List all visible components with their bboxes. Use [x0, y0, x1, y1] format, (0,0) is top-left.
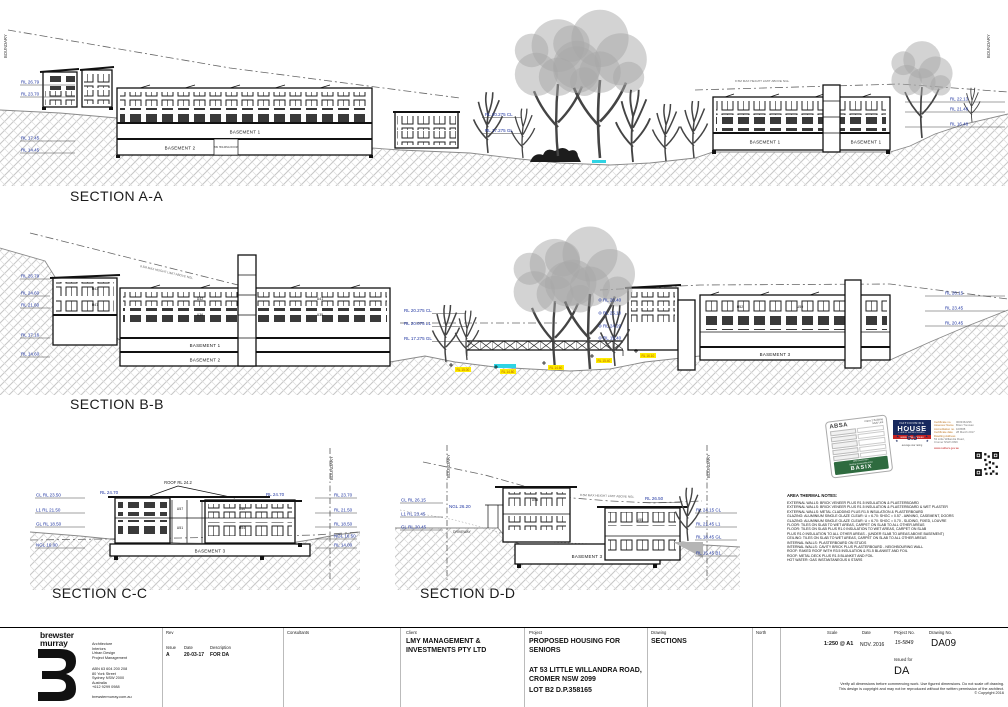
svg-text:RL 15.00: RL 15.00 — [457, 368, 470, 372]
basement-label: BASEMENT 1 — [230, 130, 261, 135]
svg-text:★: ★ — [895, 439, 898, 443]
firm-logo-mark — [36, 649, 76, 701]
svg-text:★: ★ — [915, 425, 918, 429]
svg-text:RL 22.13: RL 22.13 — [950, 97, 969, 102]
basix-certificate-stamp: ABSA Class 2 Building Multi Unit NSW Gov… — [825, 414, 893, 478]
svg-text:RL 19.40: RL 19.40 — [603, 336, 622, 341]
svg-text:RL 15.45 B1: RL 15.45 B1 — [696, 551, 721, 556]
scale-label: Scale — [827, 630, 837, 635]
project-label: Project — [529, 630, 542, 635]
ground-hatch — [30, 532, 360, 590]
drawing-sheet: 8.5M MAX HEIGHT LIMIT ABOVE NGL BOUNDARY… — [0, 0, 1008, 707]
basement-label: BASEMENT 2 — [165, 146, 196, 151]
section-c-label: SECTION C-C — [52, 585, 147, 601]
svg-text:6.5: 6.5 — [907, 433, 918, 442]
svg-text:RL 23.70: RL 23.70 — [334, 493, 353, 498]
tree-icon — [616, 90, 650, 162]
svg-text:U50: U50 — [797, 305, 803, 309]
svg-text:RL 26.50: RL 26.50 — [645, 496, 664, 501]
svg-text:RL 16.10: RL 16.10 — [642, 354, 655, 358]
svg-text:L1 RL 21.50: L1 RL 21.50 — [36, 508, 61, 513]
svg-text:RL 26.15: RL 26.15 — [945, 291, 964, 296]
firm-address: ABN 63 604 200 20880 York Street Sydney … — [92, 667, 127, 690]
title-block: brewstermurray ArchitectureInteriors Urb… — [0, 627, 1008, 707]
svg-text:RL 20.45: RL 20.45 — [945, 321, 964, 326]
project-no-value: 15-5849 — [895, 640, 913, 646]
svg-text:U35: U35 — [317, 313, 323, 317]
svg-text:RL 21.60: RL 21.60 — [21, 303, 40, 308]
height-limit-text: 8.5M MAX HEIGHT LIMIT ABOVE NGL — [735, 79, 789, 83]
tree-icon — [653, 104, 680, 161]
issued-for-label: Issued for — [894, 657, 912, 662]
basement-label: BASEMENT 1 — [750, 140, 781, 145]
bin-room-label: BIN HOLDING ROOM — [214, 146, 238, 149]
svg-text:RL 21.50: RL 21.50 — [334, 508, 353, 513]
svg-text:CL RL 26.15: CL RL 26.15 — [401, 498, 426, 503]
svg-text:★: ★ — [902, 427, 905, 431]
basement-label: BASEMENT 1 — [190, 343, 221, 348]
nathers-stamp: ★ ★ ★ ★ ★ ★ ★ ★ ★ ★ ★ 6.5 average star r… — [893, 420, 931, 439]
boundary-text: BOUNDARY — [446, 454, 451, 478]
roof-annotation: ROOF RL 24.2 RL 24.70 RL 24.70 — [100, 480, 285, 498]
project-lot: LOT B2 D.P.358165 — [529, 687, 651, 696]
north-label: North — [756, 630, 766, 635]
building — [393, 112, 460, 148]
basement-label: BASEMENT 2 — [190, 358, 221, 363]
drawing-no-value: DA09 — [931, 638, 956, 649]
svg-text:★: ★ — [906, 425, 909, 429]
building: BASEMENT 3 U52 U50 — [625, 280, 890, 370]
svg-text:NGL 16.50: NGL 16.50 — [334, 534, 356, 539]
svg-text:RL 21.48: RL 21.48 — [950, 107, 969, 112]
tree-icon — [891, 41, 952, 138]
svg-text:RL 26.79: RL 26.79 — [21, 274, 40, 279]
svg-text:RL 23.45: RL 23.45 — [945, 306, 964, 311]
rev-label: Rev — [166, 630, 173, 635]
svg-text:U54: U54 — [239, 526, 245, 530]
building: U55 — [597, 507, 688, 560]
consultants-label: Consultants — [287, 630, 309, 635]
svg-text:NGL 16.00: NGL 16.00 — [36, 543, 58, 548]
drawing-label: Drawing — [651, 630, 666, 635]
boundary-text: BOUNDARY — [706, 454, 711, 478]
svg-text:average star rating: average star rating — [902, 444, 923, 447]
svg-text:★: ★ — [896, 434, 899, 438]
basement-label: BASEMENT 3 — [195, 549, 226, 554]
area-thermal-notes: AREA THERMAL NOTES: EXTERNAL WALLS: BRIC… — [787, 493, 1005, 563]
footbridge — [467, 341, 623, 356]
svg-text:U47: U47 — [92, 303, 98, 307]
svg-text:ROOF RL 24.2: ROOF RL 24.2 — [164, 480, 192, 485]
svg-text:RL 16.48: RL 16.48 — [950, 122, 969, 127]
section-b-drawing: 8.5M MAX HEIGHT LIMIT ABOVE NGL U43 U47 … — [0, 215, 1008, 400]
boundary-text: BOUNDARY — [986, 34, 991, 58]
svg-text:U55: U55 — [637, 518, 643, 522]
building: BASEMENT 1 BASEMENT 2 BIN HOLDING ROOM — [116, 85, 373, 158]
svg-text:U50: U50 — [239, 507, 245, 511]
qr-code — [975, 452, 999, 476]
svg-text:★: ★ — [926, 439, 929, 443]
height-limit-line — [695, 84, 1008, 92]
boundary-text: BOUNDARY — [329, 456, 334, 480]
rl-label-mid: RL 26.50 — [643, 496, 680, 503]
disclaimer: Verify all dimensions before commencing … — [782, 682, 1004, 696]
svg-text:RL 17.45: RL 17.45 — [21, 136, 40, 141]
section-a-label: SECTION A-A — [70, 188, 163, 204]
svg-text:RL 26.40: RL 26.40 — [603, 298, 622, 303]
rev-row-date: 20-03-17 — [184, 652, 204, 658]
svg-text:RL 15.40: RL 15.40 — [598, 359, 611, 363]
svg-text:U57: U57 — [177, 507, 183, 511]
svg-text:RL 14.45: RL 14.45 — [21, 148, 40, 153]
project-no-label: Project No. — [894, 630, 915, 635]
project-title: PROPOSED HOUSING FOR SENIORS — [529, 638, 649, 655]
building: BASEMENT 3 U57 U51 U50 U54 — [108, 497, 310, 560]
svg-text:RL 25.10: RL 25.10 — [603, 311, 622, 316]
svg-text:RL 18.45 GL: RL 18.45 GL — [696, 535, 722, 540]
building: U43 U47 — [50, 275, 120, 345]
project-address: AT 53 LITTLE WILLANDRA ROAD, CROMER NSW … — [529, 667, 651, 684]
boundary-text: BOUNDARY — [3, 34, 8, 58]
tree-icon — [964, 88, 980, 122]
svg-text:RL 14.60: RL 14.60 — [21, 352, 40, 357]
client-label: Client — [406, 630, 417, 635]
svg-text:RL 14.00: RL 14.00 — [334, 543, 353, 548]
svg-text:RL 20.275 CL: RL 20.275 CL — [485, 112, 513, 117]
drawing-no-label: Drawing No. — [929, 630, 952, 635]
svg-text:RL 26.79: RL 26.79 — [21, 80, 40, 85]
firm-website: brewstermurray.com.au — [92, 695, 132, 700]
section-d-label: SECTION D-D — [420, 585, 515, 601]
date-value: NOV. 2016 — [860, 642, 884, 648]
driveway-label: DRIVEWAY — [453, 530, 471, 534]
svg-text:★: ★ — [925, 434, 928, 438]
tree-icon — [681, 101, 708, 158]
creek-water — [592, 160, 606, 163]
firm-logo-name: brewstermurray — [40, 631, 74, 647]
section-a-drawing: 8.5M MAX HEIGHT LIMIT ABOVE NGL BOUNDARY… — [0, 0, 1008, 190]
svg-text:RL 17.275 GL: RL 17.275 GL — [485, 128, 513, 133]
svg-text:L1 RL 23.45: L1 RL 23.45 — [401, 512, 426, 517]
svg-text:GL RL 18.50: GL RL 18.50 — [36, 522, 62, 527]
section-d-drawing: BOUNDARY BOUNDARY 8.5M MAX HEIGHT LIMIT … — [395, 440, 740, 595]
svg-text:U36: U36 — [197, 313, 203, 317]
section-c-drawing: BOUNDARY BASEMENT 3 U57 U51 U50 U54 ROOF… — [30, 440, 360, 595]
tree-icon — [553, 10, 647, 158]
svg-text:RL 20.075 L1: RL 20.075 L1 — [404, 321, 431, 326]
scale-value: 1:250 @ A1 — [824, 641, 853, 647]
svg-text:★: ★ — [911, 424, 914, 428]
svg-text:U52: U52 — [737, 305, 743, 309]
basement-label: BASEMENT 3 — [572, 554, 603, 559]
svg-text:U41: U41 — [317, 297, 323, 301]
svg-text:GL RL 20.45: GL RL 20.45 — [401, 525, 427, 530]
svg-text:RL 24.70: RL 24.70 — [100, 490, 119, 495]
svg-text:U42: U42 — [197, 297, 203, 301]
building: BASEMENT 1 BASEMENT 1 — [712, 85, 890, 154]
svg-text:RL 17.16: RL 17.16 — [21, 333, 40, 338]
svg-text:RL 24.15 CL: RL 24.15 CL — [696, 508, 722, 513]
svg-text:RL 14.60: RL 14.60 — [550, 366, 563, 370]
certificate-fields: Certificate no.0003362296 Assessor NameB… — [934, 421, 1004, 450]
section-b-label: SECTION B-B — [70, 396, 164, 412]
basement-label: BASEMENT 3 — [760, 352, 791, 357]
svg-text:RL 24.70: RL 24.70 — [266, 492, 285, 497]
height-limit-text: 8.5M MAX HEIGHT LIMIT ABOVE NGL — [580, 493, 635, 499]
svg-text:RL 17.275 GL: RL 17.275 GL — [404, 336, 432, 341]
svg-text:8.5M MAX HEIGHT LIMIT ABOVE NG: 8.5M MAX HEIGHT LIMIT ABOVE NGL — [580, 493, 635, 499]
drawing-title: SECTIONS — [651, 638, 687, 647]
tree-icon — [474, 92, 503, 153]
rev-row-issue: A — [166, 652, 170, 658]
svg-text:RL 23.70: RL 23.70 — [21, 92, 40, 97]
issued-for-value: DA — [894, 665, 909, 677]
svg-text:RL 18.50: RL 18.50 — [334, 522, 353, 527]
svg-text:RL 24.20: RL 24.20 — [603, 324, 622, 329]
svg-text:NGL 26.20: NGL 26.20 — [449, 504, 471, 509]
client-name: LMY MANAGEMENT & INVESTMENTS PTY LTD — [406, 638, 522, 655]
svg-text:RL 24.60: RL 24.60 — [21, 291, 40, 296]
svg-text:CL RL 23.50: CL RL 23.50 — [36, 493, 61, 498]
rocks — [530, 148, 581, 162]
svg-text:RL 21.45 L1: RL 21.45 L1 — [696, 522, 721, 527]
svg-text:U58: U58 — [532, 498, 538, 502]
rev-row-description: FOR DA — [210, 652, 229, 658]
svg-text:U43: U43 — [92, 287, 98, 291]
date-label: Date — [862, 630, 871, 635]
star-rating: ★ ★ ★ ★ ★ ★ ★ ★ ★ ★ ★ 6.5 average star r… — [893, 420, 931, 449]
building — [40, 67, 114, 110]
svg-text:RL 14.80: RL 14.80 — [502, 370, 515, 374]
rl-labels-left: CL RL 26.15 L1 RL 23.45 GL RL 20.45 NGL … — [400, 498, 471, 531]
svg-text:U51: U51 — [177, 526, 183, 530]
firm-services: ArchitectureInteriors Urban DesignProjec… — [92, 642, 127, 660]
svg-text:RL 20.275 CL: RL 20.275 CL — [404, 308, 432, 313]
notes-title: AREA THERMAL NOTES: — [787, 493, 1005, 498]
basement-label: BASEMENT 1 — [851, 140, 882, 145]
